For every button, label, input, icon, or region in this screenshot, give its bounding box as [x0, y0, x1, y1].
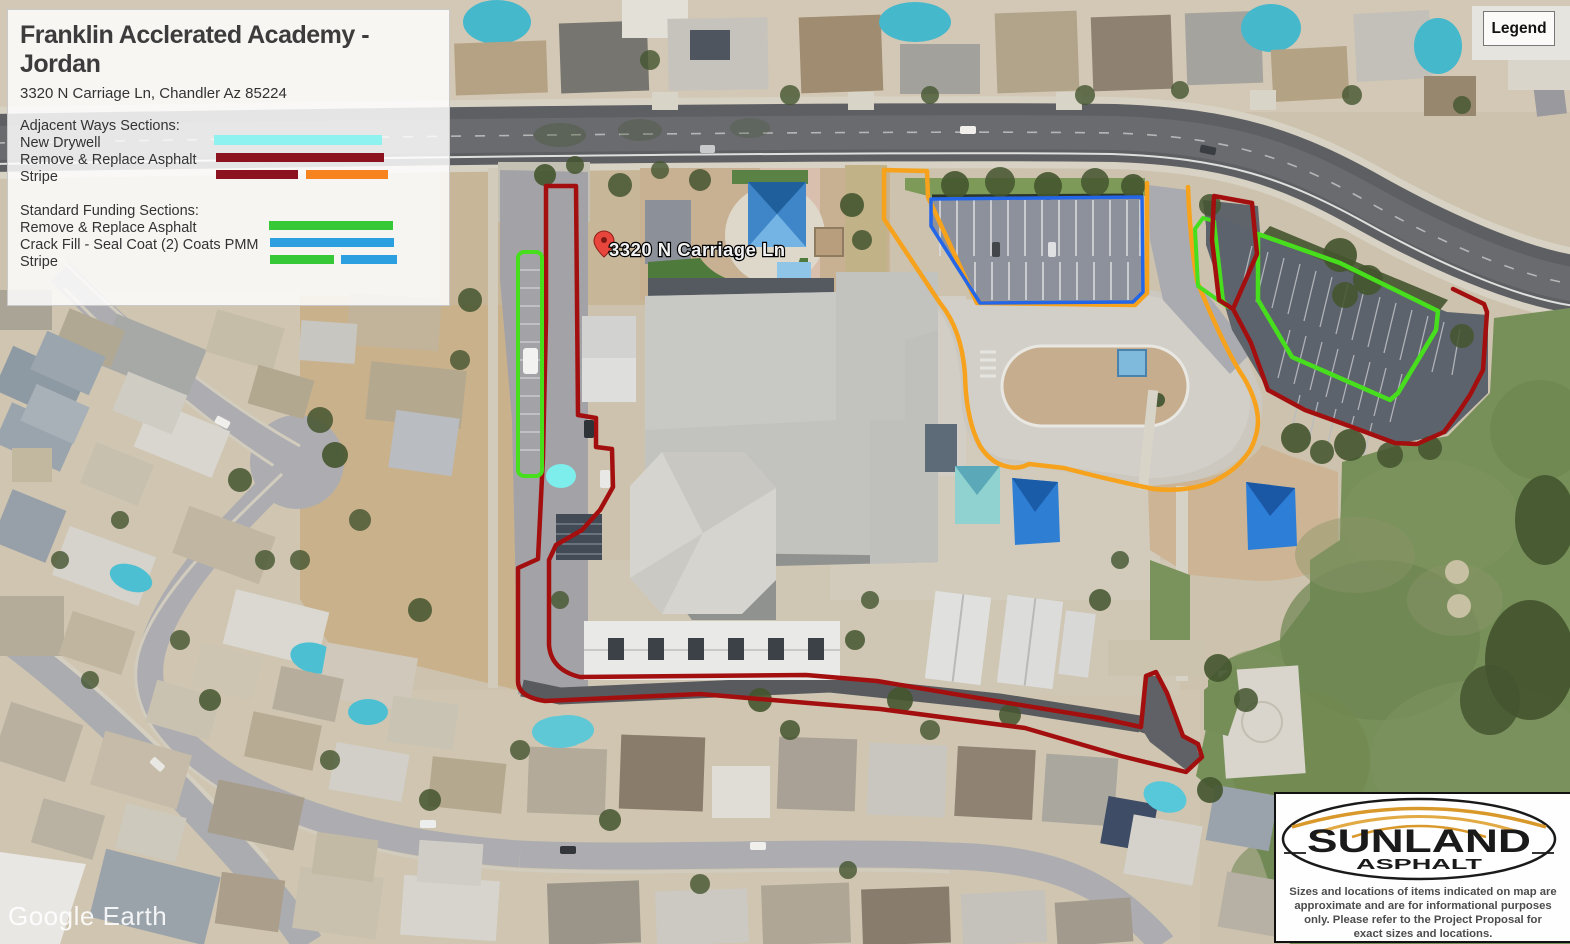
svg-text:ASPHALT: ASPHALT — [1356, 856, 1482, 873]
svg-text:SUNLAND: SUNLAND — [1307, 823, 1531, 859]
svg-text:exact sizes and locations.: exact sizes and locations. — [1354, 928, 1493, 940]
svg-text:Sizes and locations of items i: Sizes and locations of items indicated o… — [1289, 886, 1556, 898]
svg-text:only. Please refer to the Proj: only. Please refer to the Project Propos… — [1304, 914, 1542, 926]
svg-text:approximate and are for inform: approximate and are for informational pu… — [1294, 900, 1551, 912]
svg-text:3320 N Carriage Ln: 3320 N Carriage Ln — [609, 239, 786, 260]
